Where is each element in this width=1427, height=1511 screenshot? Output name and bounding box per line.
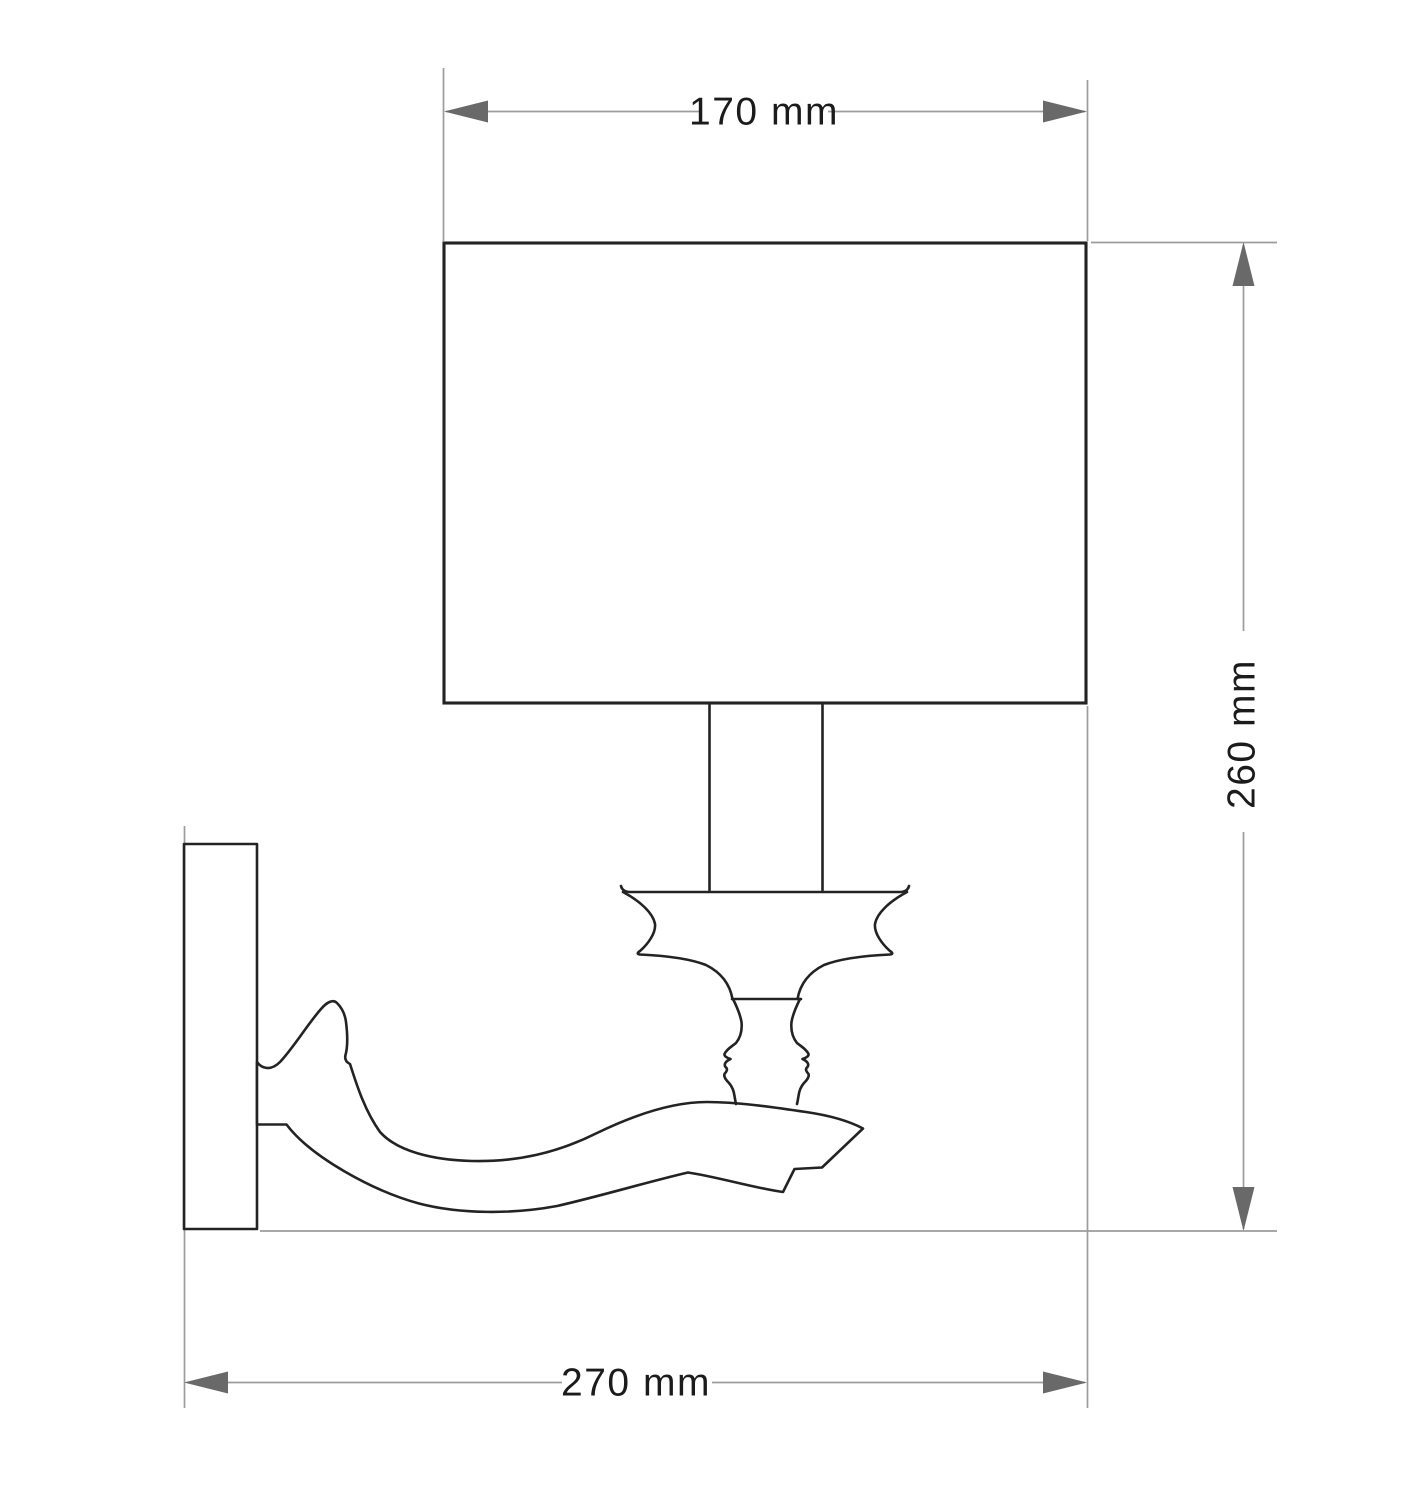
arrowhead-down — [1233, 1187, 1255, 1231]
neck-right-profile — [791, 999, 808, 1104]
lampshade — [444, 243, 1086, 703]
baluster-neck — [724, 999, 808, 1104]
neck-left-profile — [724, 999, 741, 1104]
candle-tube — [710, 705, 823, 890]
technical-drawing-canvas: 170 mm 260 mm 270 mm — [0, 0, 1427, 1511]
dimension-right-height: 260 mm — [1221, 242, 1264, 1231]
arrowhead-left — [444, 101, 488, 123]
arrowhead-up — [1233, 242, 1255, 286]
bobeche-left-side — [623, 892, 733, 999]
arrowhead-left — [184, 1372, 228, 1394]
bobeche-cup — [621, 886, 909, 999]
extension-lines — [185, 68, 1278, 1408]
wall-lamp-outline — [184, 243, 1086, 1229]
bobeche-right-side — [798, 892, 908, 999]
wall-mount-plate — [184, 844, 257, 1229]
dimension-top-width: 170 mm — [444, 91, 1087, 134]
dimension-label-right-height: 260 mm — [1221, 659, 1264, 809]
lamp-arm — [257, 1001, 863, 1212]
dimension-bottom-depth: 270 mm — [184, 1362, 1087, 1405]
bobeche-top-edge — [621, 886, 909, 892]
dimension-label-top-width: 170 mm — [689, 91, 839, 134]
dimension-label-bottom-depth: 270 mm — [561, 1362, 711, 1405]
arrowhead-right — [1043, 101, 1087, 123]
arrowhead-right — [1043, 1372, 1087, 1394]
wall-lamp-dimension-drawing: 170 mm 260 mm 270 mm — [0, 0, 1427, 1511]
